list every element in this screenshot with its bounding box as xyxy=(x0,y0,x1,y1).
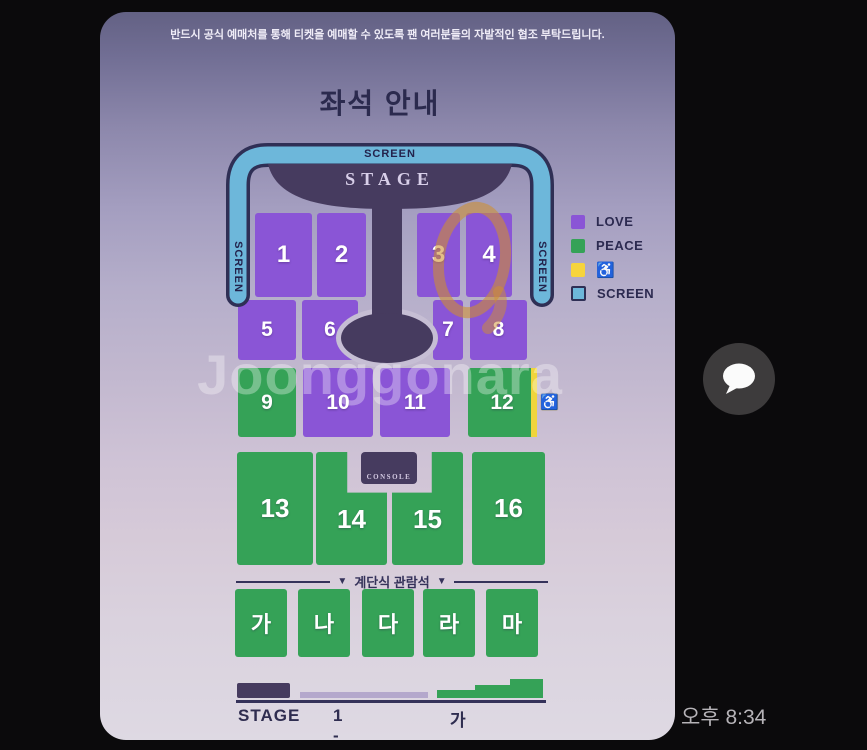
legend: LOVE PEACE ♿ SCREEN xyxy=(571,214,654,310)
wheelchair-icon: ♿ xyxy=(540,393,559,411)
legend-item-love: LOVE xyxy=(571,214,654,229)
chat-image-view: 반드시 공식 예매처를 통해 티켓을 예매할 수 있도록 팬 여러분들의 자발적… xyxy=(0,0,867,750)
mini-baseline xyxy=(236,700,546,703)
mini-floor-strip xyxy=(300,692,428,698)
section-12: 12 xyxy=(468,368,536,437)
peace-color-swatch xyxy=(571,239,585,253)
wheelchair-strip xyxy=(531,368,537,437)
speech-bubble-icon xyxy=(719,361,759,397)
wheelchair-icon: ♿ xyxy=(596,261,615,279)
message-timestamp: 오후 8:34 xyxy=(681,701,766,731)
legend-label-screen: SCREEN xyxy=(597,286,654,301)
chat-bubble-button[interactable] xyxy=(703,343,775,415)
mini-stage-label: STAGE xyxy=(238,706,300,726)
seat-guide-card[interactable]: 반드시 공식 예매처를 통해 티켓을 예매할 수 있도록 팬 여러분들의 자발적… xyxy=(100,12,675,740)
section-16: 16 xyxy=(472,452,545,565)
section-1: 1 xyxy=(255,213,312,297)
mini-stage-block xyxy=(237,683,290,698)
screen-color-swatch xyxy=(571,286,586,301)
runway-shape xyxy=(372,197,402,337)
screen-label-left: SCREEN xyxy=(223,222,253,312)
section-8: 8 xyxy=(470,300,527,360)
section-na: 나 xyxy=(298,589,350,657)
notice-text: 반드시 공식 예매처를 통해 티켓을 예매할 수 있도록 팬 여러분들의 자발적… xyxy=(100,26,675,42)
section-9: 9 xyxy=(238,368,296,437)
page-title: 좌석 안내 xyxy=(100,82,660,122)
legend-item-screen: SCREEN xyxy=(571,286,654,301)
section-da: 다 xyxy=(362,589,414,657)
step-range: 가 - 마 xyxy=(450,711,466,740)
floor-range: 1 - 16 xyxy=(333,706,352,740)
stage-label: STAGE xyxy=(270,169,510,190)
legend-label-peace: PEACE xyxy=(596,238,643,253)
section-13: 13 xyxy=(237,452,313,565)
section-ra: 라 xyxy=(423,589,475,657)
console-label: CONSOLE xyxy=(361,461,417,493)
mini-stairs-step xyxy=(510,679,543,698)
screen-label-top: SCREEN xyxy=(100,148,675,160)
section-2: 2 xyxy=(317,213,366,297)
section-6: 6 xyxy=(302,300,358,360)
divider-line-left xyxy=(236,581,330,583)
mini-stairs-step xyxy=(437,690,475,698)
love-color-swatch xyxy=(571,215,585,229)
legend-item-wheelchair: ♿ xyxy=(571,262,654,277)
section-10: 10 xyxy=(303,368,373,437)
mini-step-label: 가 - 마구역 xyxy=(450,706,466,740)
section-7: 7 xyxy=(433,300,463,360)
section-11: 11 xyxy=(380,368,450,437)
section-ga: 가 xyxy=(235,589,287,657)
legend-label-love: LOVE xyxy=(596,214,633,229)
mini-floor-label: 1 - 16구역 xyxy=(333,706,352,740)
section-3: 3 xyxy=(417,213,460,297)
screen-label-right: SCREEN xyxy=(527,222,557,312)
wheelchair-color-swatch xyxy=(571,263,585,277)
section-15-label: 15 xyxy=(413,504,442,535)
down-arrow-icon: ▼ xyxy=(437,576,447,587)
section-ma: 마 xyxy=(486,589,538,657)
divider-line-right xyxy=(454,581,548,583)
legend-item-peace: PEACE xyxy=(571,238,654,253)
section-4: 4 xyxy=(466,213,512,297)
mini-stairs-step xyxy=(475,685,510,698)
section-14-label: 14 xyxy=(337,504,366,535)
down-arrow-icon: ▼ xyxy=(337,576,347,587)
